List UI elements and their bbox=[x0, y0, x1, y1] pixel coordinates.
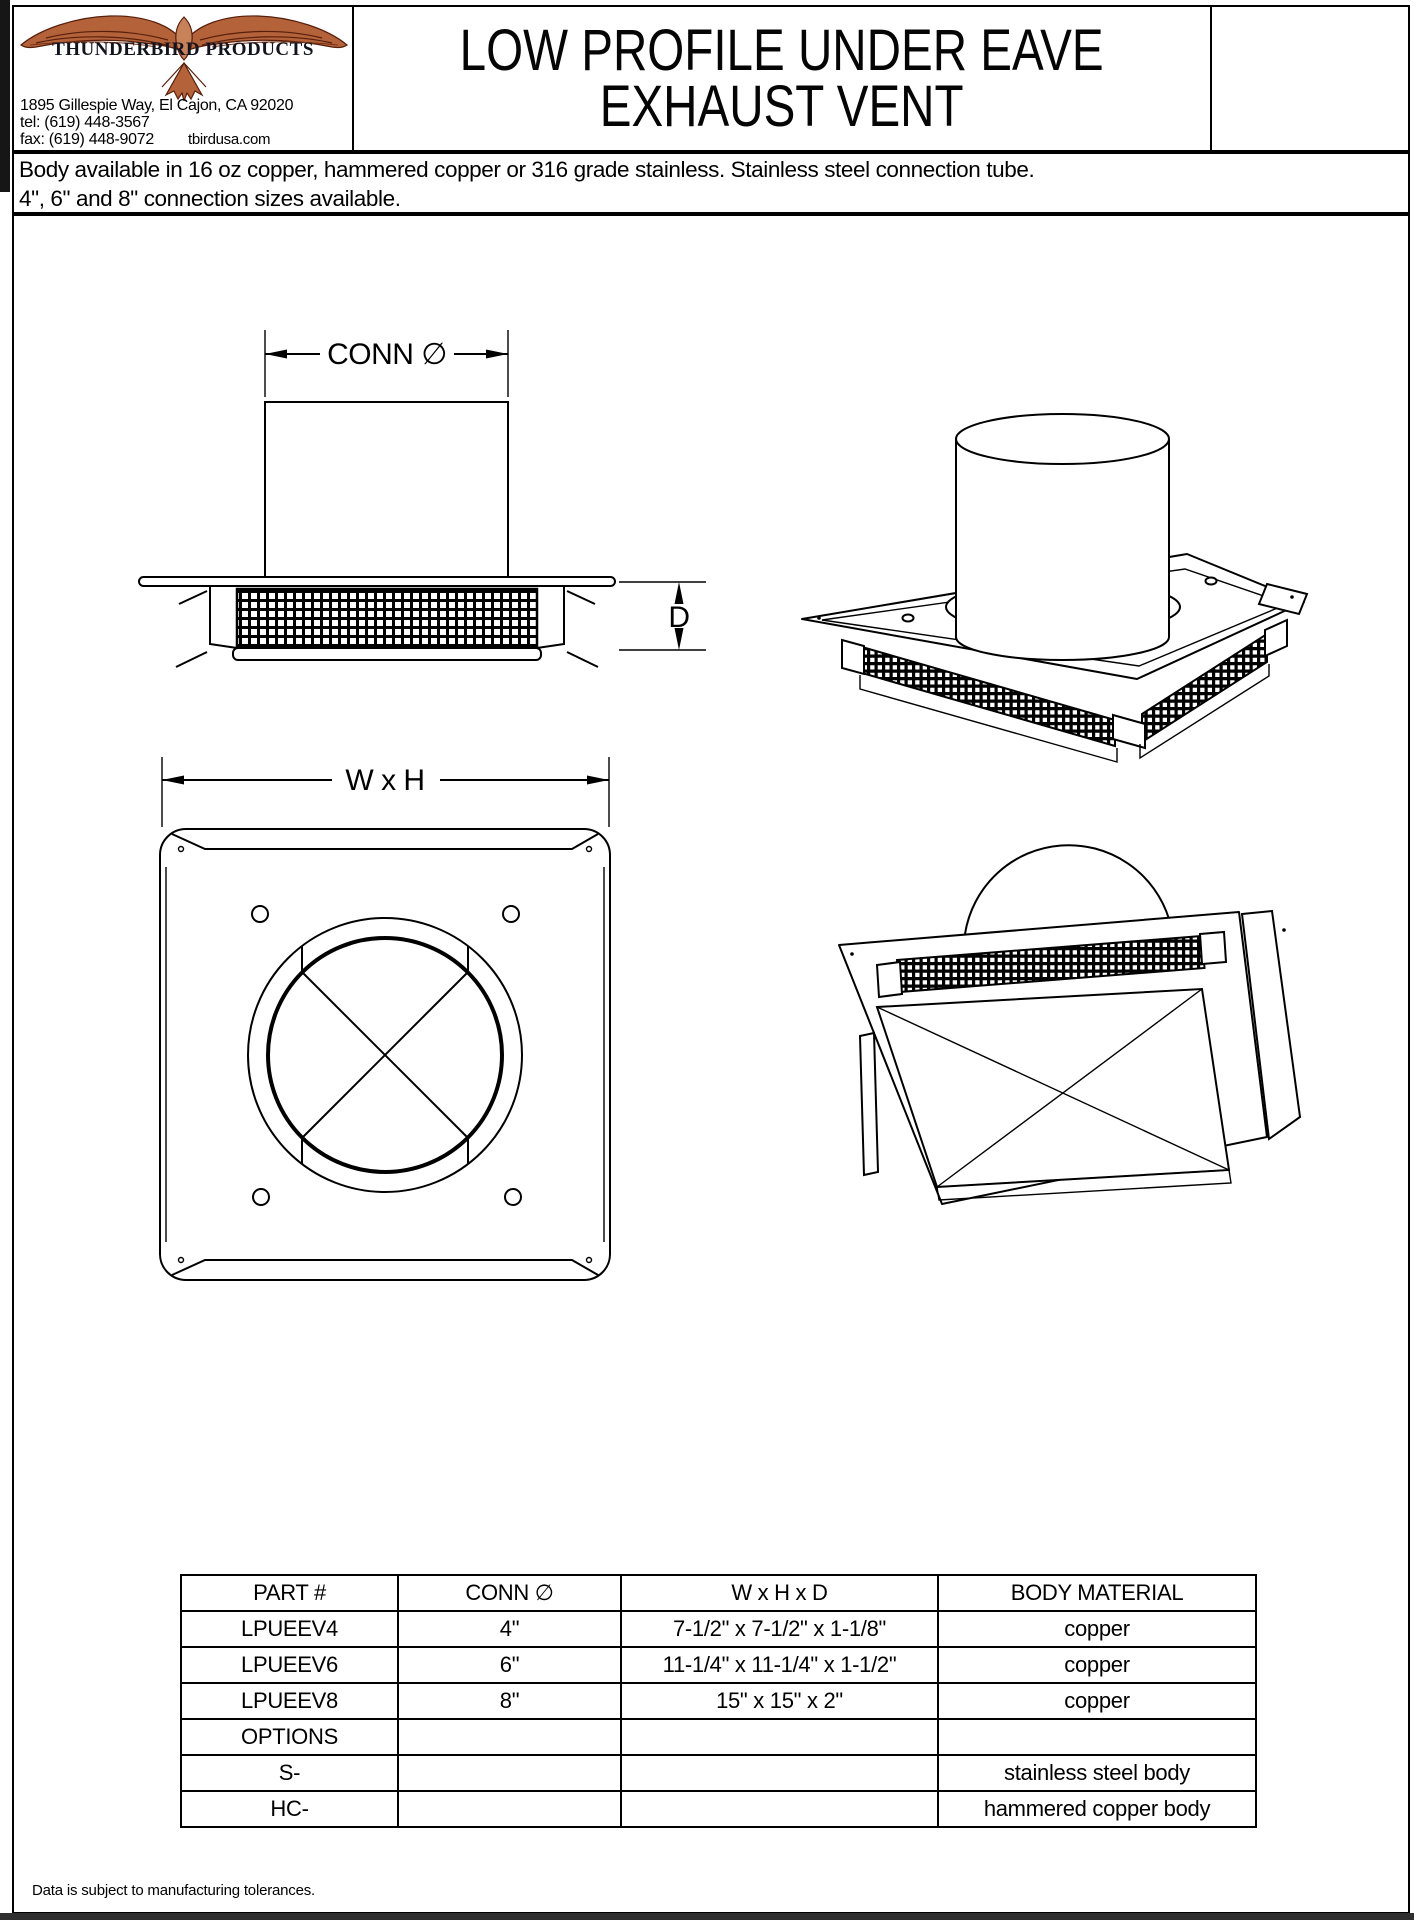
screw-hole bbox=[503, 906, 519, 922]
screw-hole bbox=[903, 615, 914, 622]
description-line-2: 4", 6" and 8" connection sizes available… bbox=[19, 184, 1408, 213]
eagle-tail bbox=[166, 63, 202, 101]
option-prefix-cell: S- bbox=[181, 1755, 398, 1791]
table-cell: copper bbox=[938, 1611, 1256, 1647]
title-line-1: LOW PROFILE UNDER EAVE bbox=[460, 23, 1104, 79]
part-number-cell: LPUEEV4 bbox=[181, 1611, 398, 1647]
depth-label: D bbox=[668, 601, 689, 634]
conn-diameter-label: CONN ∅ bbox=[327, 338, 447, 371]
screw-hole bbox=[505, 1189, 521, 1205]
screw-hole bbox=[1206, 578, 1217, 585]
column-header-conn-diameter: CONN ∅ bbox=[398, 1575, 621, 1611]
table-cell bbox=[938, 1719, 1256, 1755]
revision-box bbox=[1212, 7, 1408, 150]
mesh-screen bbox=[237, 589, 537, 648]
bottom-lip bbox=[233, 648, 541, 660]
logo-cell: THUNDERBIRD PRODUCTS 1895 Gillespie Way,… bbox=[14, 7, 354, 150]
company-address: 1895 Gillespie Way, El Cajon, CA 92020 bbox=[20, 97, 293, 114]
table-row: LPUEEV8 8" 15" x 15" x 2" copper bbox=[181, 1683, 1256, 1719]
table-cell bbox=[398, 1755, 621, 1791]
table-cell bbox=[398, 1791, 621, 1827]
table-row: OPTIONS bbox=[181, 1719, 1256, 1755]
table-row: LPUEEV6 6" 11-1/4" x 11-1/4" x 1-1/2" co… bbox=[181, 1647, 1256, 1683]
screw-hole bbox=[252, 906, 268, 922]
column-header-body-material: BODY MATERIAL bbox=[938, 1575, 1256, 1611]
table-header-row: PART # CONN ∅ W x H x D BODY MATERIAL bbox=[181, 1575, 1256, 1611]
description-line-1: Body available in 16 oz copper, hammered… bbox=[19, 155, 1408, 184]
table-cell: hammered copper body bbox=[938, 1791, 1256, 1827]
column-header-part-number: PART # bbox=[181, 1575, 398, 1611]
scan-edge-artifact bbox=[0, 0, 10, 192]
table-cell bbox=[621, 1719, 938, 1755]
connection-tube bbox=[956, 439, 1169, 660]
part-number-cell: LPUEEV8 bbox=[181, 1683, 398, 1719]
company-fax: fax: (619) 448-9072 bbox=[20, 131, 154, 148]
option-prefix-cell: HC- bbox=[181, 1791, 398, 1827]
table-cell: copper bbox=[938, 1683, 1256, 1719]
table-cell: stainless steel body bbox=[938, 1755, 1256, 1791]
table-cell bbox=[398, 1719, 621, 1755]
table-row: S- stainless steel body bbox=[181, 1755, 1256, 1791]
table-cell: 6" bbox=[398, 1647, 621, 1683]
connection-tube bbox=[265, 402, 508, 579]
column-header-dimensions: W x H x D bbox=[621, 1575, 938, 1611]
company-name: THUNDERBIRD PRODUCTS bbox=[14, 39, 352, 61]
table-cell: 15" x 15" x 2" bbox=[621, 1683, 938, 1719]
drawing-area: CONN ∅ D bbox=[12, 214, 1410, 1914]
part-number-cell: LPUEEV6 bbox=[181, 1647, 398, 1683]
title-line-2: EXHAUST VENT bbox=[460, 79, 1104, 135]
tolerance-note: Data is subject to manufacturing toleran… bbox=[32, 1882, 315, 1899]
isometric-top-view bbox=[747, 332, 1317, 772]
table-cell bbox=[621, 1791, 938, 1827]
side-tab bbox=[860, 1033, 878, 1175]
table-cell: 4" bbox=[398, 1611, 621, 1647]
datasheet-page: THUNDERBIRD PRODUCTS 1895 Gillespie Way,… bbox=[0, 0, 1414, 1920]
table-cell: 7-1/2" x 7-1/2" x 1-1/8" bbox=[621, 1611, 938, 1647]
table-row: LPUEEV4 4" 7-1/2" x 7-1/2" x 1-1/8" copp… bbox=[181, 1611, 1256, 1647]
company-address-block: 1895 Gillespie Way, El Cajon, CA 92020 t… bbox=[20, 97, 293, 148]
company-tel: tel: (619) 448-3567 bbox=[20, 114, 293, 131]
screw-hole bbox=[253, 1189, 269, 1205]
flange bbox=[139, 577, 615, 586]
table-cell: copper bbox=[938, 1647, 1256, 1683]
company-website: tbirdusa.com bbox=[188, 131, 270, 148]
width-height-label: W x H bbox=[345, 764, 424, 797]
scan-bottom-edge bbox=[0, 1913, 1414, 1920]
description-box: Body available in 16 oz copper, hammered… bbox=[12, 152, 1410, 214]
table-cell bbox=[621, 1755, 938, 1791]
table-row: HC- hammered copper body bbox=[181, 1791, 1256, 1827]
spec-table: PART # CONN ∅ W x H x D BODY MATERIAL LP… bbox=[180, 1574, 1257, 1828]
document-title: LOW PROFILE UNDER EAVE EXHAUST VENT bbox=[354, 7, 1212, 150]
table-cell: 8" bbox=[398, 1683, 621, 1719]
isometric-bottom-view bbox=[822, 842, 1302, 1262]
title-block: THUNDERBIRD PRODUCTS 1895 Gillespie Way,… bbox=[12, 5, 1410, 152]
bottom-plan-view: W x H bbox=[132, 742, 652, 1302]
front-section-view: CONN ∅ D bbox=[122, 257, 822, 677]
table-cell: 11-1/4" x 11-1/4" x 1-1/2" bbox=[621, 1647, 938, 1683]
options-label-cell: OPTIONS bbox=[181, 1719, 398, 1755]
